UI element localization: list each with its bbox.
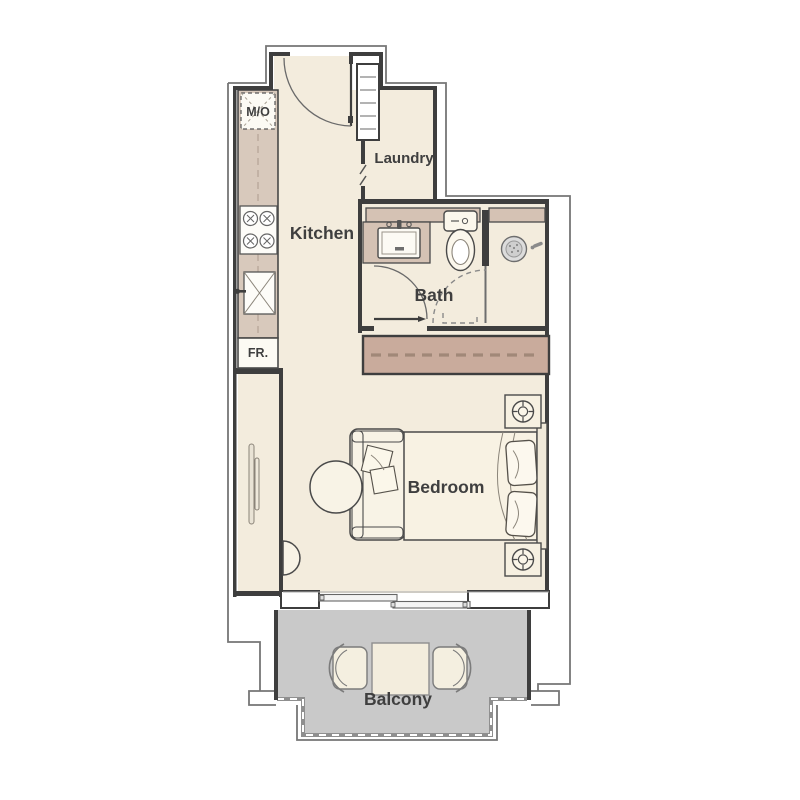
laundry-label: Laundry <box>374 150 434 167</box>
microwave-oven-icon: M/O <box>241 93 275 129</box>
service-shaft-icon <box>357 64 379 140</box>
kitchen-label: Kitchen <box>290 223 354 243</box>
bath-label: Bath <box>415 285 454 305</box>
fridge-icon: FR. <box>238 338 278 368</box>
wardrobe-icon <box>363 336 549 374</box>
microwave-oven-label: M/O <box>246 105 270 119</box>
nightstand-top-icon <box>505 395 541 428</box>
stove-icon <box>240 206 277 254</box>
bedroom-label: Bedroom <box>408 477 485 497</box>
toilet-icon <box>444 211 477 271</box>
floor-plan-page: M/O FR. <box>0 0 800 800</box>
nightstand-bottom-icon <box>505 543 541 576</box>
floor-plan-drawing: M/O FR. <box>0 0 800 800</box>
sliding-door-icon <box>281 591 549 608</box>
coffee-table-icon <box>310 461 362 513</box>
headboard-icon <box>537 423 547 549</box>
balcony-chair-left-icon <box>329 644 367 692</box>
balcony-table-icon <box>372 643 429 695</box>
bath-vanity-sink-icon <box>363 220 430 263</box>
shower-head-icon <box>502 237 527 262</box>
balcony-label: Balcony <box>364 689 432 709</box>
balcony-chair-right-icon <box>433 644 471 692</box>
fridge-label: FR. <box>248 346 268 360</box>
